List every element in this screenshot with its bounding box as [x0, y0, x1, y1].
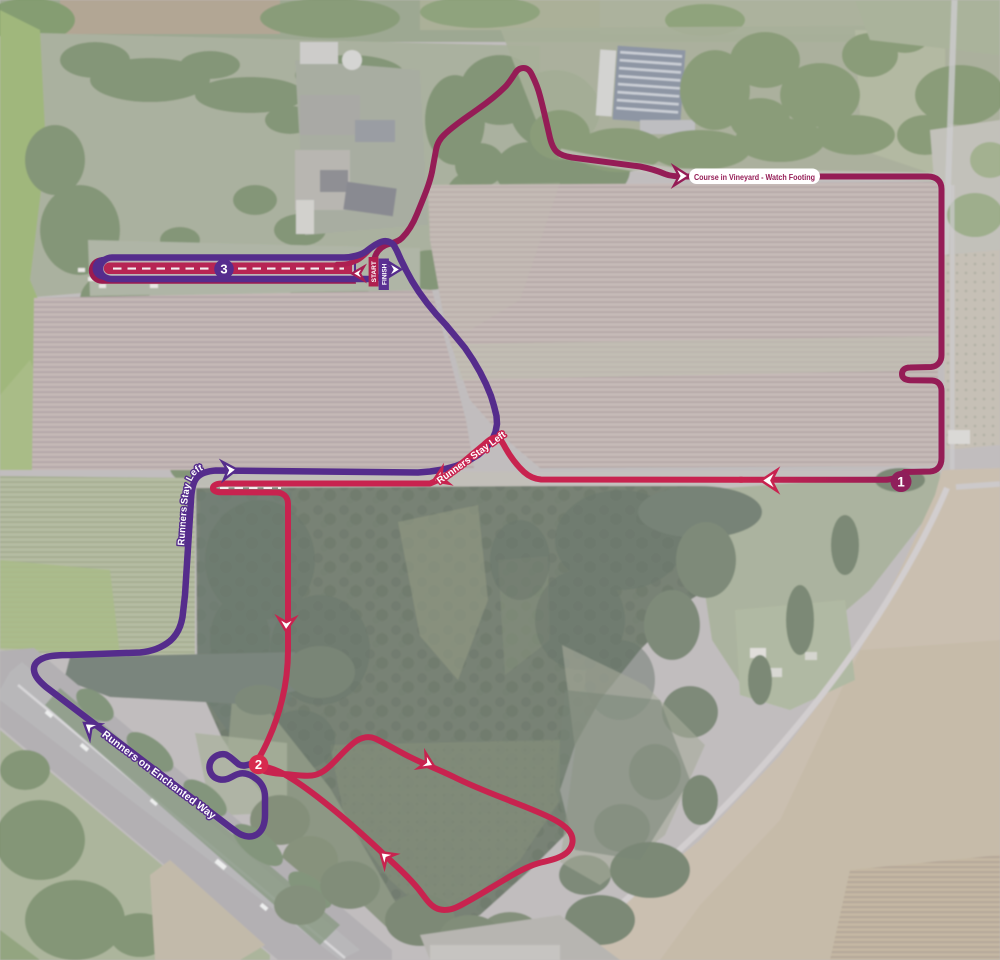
- svg-text:FINISH: FINISH: [381, 263, 388, 285]
- svg-text:1: 1: [897, 474, 905, 489]
- svg-text:START: START: [371, 261, 378, 282]
- svg-text:2: 2: [255, 757, 262, 772]
- svg-text:Course in Vineyard - Watch Foo: Course in Vineyard - Watch Footing: [694, 172, 815, 182]
- svg-text:3: 3: [220, 262, 227, 277]
